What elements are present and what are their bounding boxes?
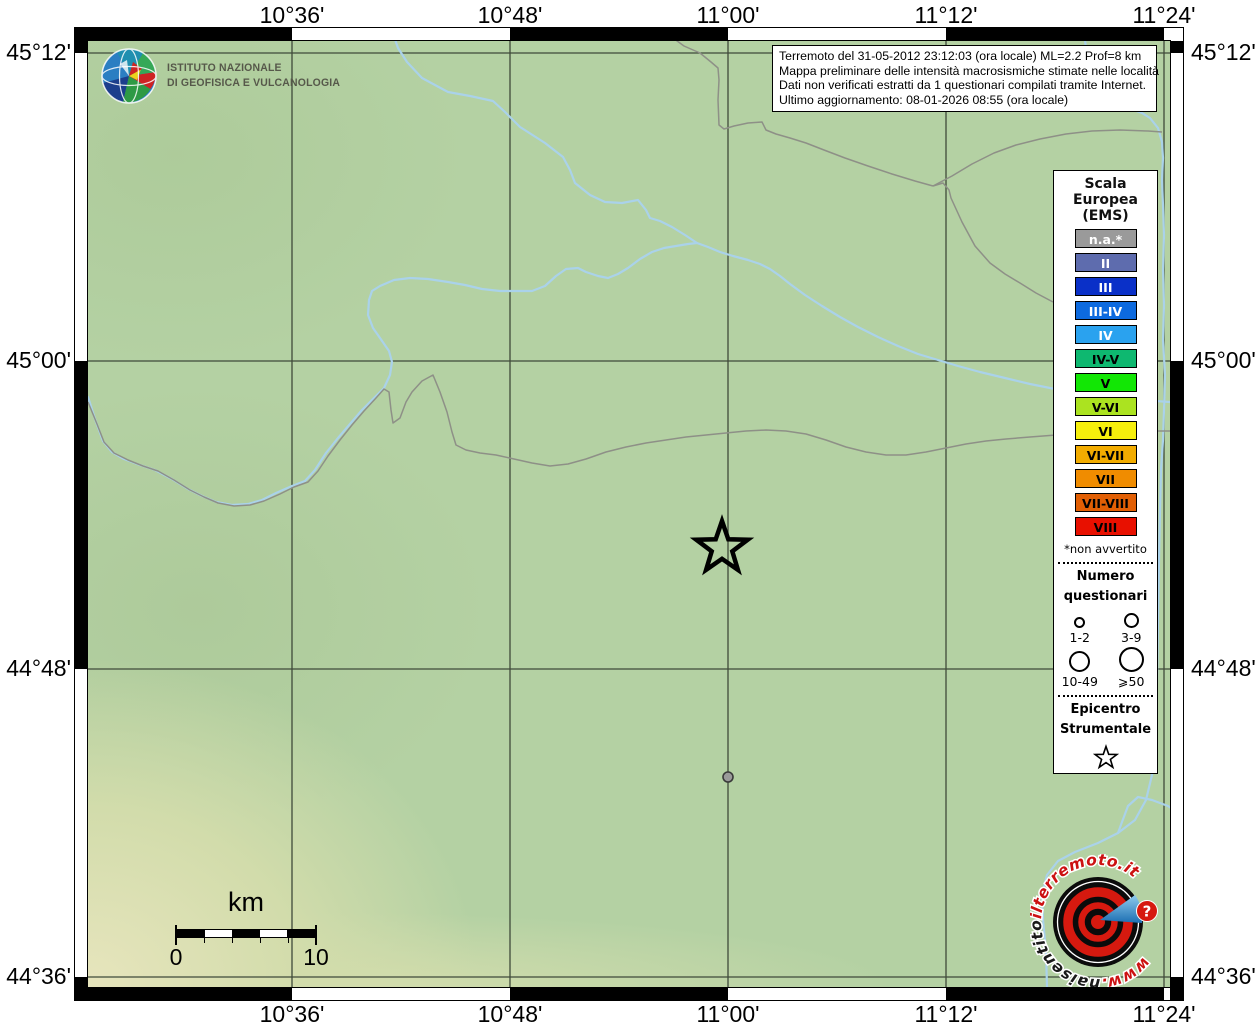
questionnaire-size-item: 10-49 xyxy=(1054,645,1106,689)
latitude-label-left: 45°00' xyxy=(0,347,71,374)
latitude-label-right: 44°48' xyxy=(1191,655,1256,682)
scale-bar-tick xyxy=(175,925,177,945)
map-markers xyxy=(696,521,747,782)
frame-segment xyxy=(1170,361,1183,669)
intensity-chip: IV-V xyxy=(1075,349,1137,368)
scale-bar-segment xyxy=(287,930,315,937)
frame-segment xyxy=(292,28,510,41)
scale-bar-segment xyxy=(232,930,260,937)
questionnaires-title-line: Numero xyxy=(1054,567,1157,587)
frame-segment xyxy=(510,987,728,1000)
intensity-chip: V-VI xyxy=(1075,397,1137,416)
longitude-label-top: 11°00' xyxy=(696,2,759,29)
ingv-name-line2: DI GEOFISICA E VULCANOLOGIA xyxy=(167,76,340,91)
title-box: Terremoto del 31-05-2012 23:12:03 (ora l… xyxy=(772,45,1157,112)
latitude-label-left: 44°36' xyxy=(0,963,71,990)
longitude-label-bottom: 10°48' xyxy=(478,1001,543,1024)
longitude-label-bottom: 11°12' xyxy=(914,1001,977,1024)
frame-segment xyxy=(728,987,946,1000)
admin-boundary xyxy=(933,183,1053,302)
questionnaire-size-circle xyxy=(1119,647,1144,672)
map-canvas: ISTITUTO NAZIONALE DI GEOFISICA E VULCAN… xyxy=(88,41,1170,987)
frame-segment xyxy=(75,53,88,361)
intensity-chip: VIII xyxy=(1075,517,1137,536)
map-page: 10°36'10°36'10°48'10°48'11°00'11°00'11°1… xyxy=(0,0,1257,1024)
legend-divider xyxy=(1058,695,1153,697)
ingv-globe-icon xyxy=(100,47,158,105)
questionnaire-size-label: ⩾50 xyxy=(1118,674,1144,689)
intensity-chip: VII-VIII xyxy=(1075,493,1137,512)
frame-segment xyxy=(946,987,1164,1000)
frame-segment xyxy=(510,28,728,41)
river xyxy=(88,243,1170,505)
ingv-name: ISTITUTO NAZIONALE DI GEOFISICA E VULCAN… xyxy=(167,61,340,105)
questionnaire-size-label: 10-49 xyxy=(1062,674,1098,689)
scale-bar-tick xyxy=(204,938,205,943)
scale-bar-tick xyxy=(288,938,289,943)
frame-band-right xyxy=(1170,28,1183,1000)
latitude-label-right: 44°36' xyxy=(1191,963,1256,990)
longitude-label-top: 11°12' xyxy=(914,2,977,29)
felt-report-dot xyxy=(723,772,733,782)
ingv-logo: ISTITUTO NAZIONALE DI GEOFISICA E VULCAN… xyxy=(100,47,349,105)
grid-lines xyxy=(88,41,1170,987)
legend-divider xyxy=(1058,562,1153,564)
frame-segment xyxy=(75,987,292,1000)
river xyxy=(391,41,697,243)
legend-title-line: Scala xyxy=(1054,176,1157,192)
scale-bar-tick xyxy=(315,925,317,945)
scale-bar-segments xyxy=(176,929,316,938)
questionnaire-size-label: 3-9 xyxy=(1121,630,1141,645)
questionnaire-size-item: 3-9 xyxy=(1106,611,1158,645)
longitude-label-bottom: 11°24' xyxy=(1132,1001,1195,1024)
scale-bar-start: 0 xyxy=(156,944,196,971)
legend-title-line: Europea xyxy=(1054,192,1157,208)
frame-segment xyxy=(292,987,510,1000)
intensity-chip: III-IV xyxy=(1075,301,1137,320)
ingv-name-line1: ISTITUTO NAZIONALE xyxy=(167,61,340,76)
frame-segment xyxy=(75,977,88,1000)
latitude-label-right: 45°12' xyxy=(1191,39,1256,66)
frame-segment xyxy=(75,669,88,977)
epicenter-star xyxy=(696,521,747,570)
frame-segment xyxy=(728,28,946,41)
intensity-chip: II xyxy=(1075,253,1137,272)
questionnaire-size-key: 1-23-910-49⩾50 xyxy=(1054,611,1157,689)
legend-title-line: (EMS) xyxy=(1054,208,1157,224)
frame-corner xyxy=(1170,28,1183,41)
legend-footnote: *non avvertito xyxy=(1054,542,1157,556)
frame-segment xyxy=(946,28,1164,41)
questionnaire-size-item: 1-2 xyxy=(1054,611,1106,645)
scale-bar-tick xyxy=(260,938,261,943)
title-line-data: Dati non verificati estratti da 1 questi… xyxy=(779,78,1150,93)
frame-segment xyxy=(75,28,88,53)
legend: Scala Europea (EMS) n.a.*IIIIIIII-IVIVIV… xyxy=(1053,170,1158,774)
latitude-label-left: 44°48' xyxy=(0,655,71,682)
scale-bar-end: 10 xyxy=(296,944,336,971)
questionnaires-title-line: questionari xyxy=(1054,587,1157,607)
longitude-label-bottom: 10°36' xyxy=(260,1001,325,1024)
longitude-label-top: 11°24' xyxy=(1132,2,1195,29)
title-line-desc: Mappa preliminare delle intensità macros… xyxy=(779,64,1150,79)
intensity-chip: VII xyxy=(1075,469,1137,488)
longitude-label-top: 10°48' xyxy=(478,2,543,29)
scale-bar-tick xyxy=(232,938,233,943)
latitude-label-left: 45°12' xyxy=(0,39,71,66)
latitude-label-right: 45°00' xyxy=(1191,347,1256,374)
frame-segment xyxy=(1170,53,1183,361)
question-mark-text: ? xyxy=(1143,903,1152,921)
questionnaire-size-circle xyxy=(1124,613,1139,628)
intensity-chip: V xyxy=(1075,373,1137,392)
questionnaire-size-circle xyxy=(1074,617,1085,628)
intensity-chip: VI xyxy=(1075,421,1137,440)
scale-bar-segment xyxy=(260,930,288,937)
frame-segment xyxy=(1170,669,1183,977)
intensity-chip: n.a.* xyxy=(1075,229,1137,248)
frame-band-top xyxy=(75,28,1183,41)
frame-segment xyxy=(75,361,88,669)
admin-boundary xyxy=(88,375,1170,506)
title-line-updated: Ultimo aggiornamento: 08-01-2026 08:55 (… xyxy=(779,93,1150,108)
scale-bar-segment xyxy=(205,930,233,937)
title-line-event: Terremoto del 31-05-2012 23:12:03 (ora l… xyxy=(779,49,1150,64)
map-frame: ISTITUTO NAZIONALE DI GEOFISICA E VULCAN… xyxy=(74,27,1184,1001)
epicenter-star-icon xyxy=(1054,744,1157,774)
map-graphics xyxy=(88,41,1170,987)
scale-bar-unit: km xyxy=(176,887,316,918)
intensity-chip: VI-VII xyxy=(1075,445,1137,464)
frame-band-bottom xyxy=(75,987,1183,1000)
questionnaire-size-label: 1-2 xyxy=(1070,630,1090,645)
frame-segment xyxy=(1170,977,1183,1000)
frame-segment xyxy=(75,28,292,41)
intensity-chip: IV xyxy=(1075,325,1137,344)
scale-bar-segment xyxy=(177,930,205,937)
frame-band-left xyxy=(75,28,88,1000)
epicenter-title-line: Epicentro xyxy=(1054,700,1157,720)
longitude-label-bottom: 11°00' xyxy=(696,1001,759,1024)
epicenter-title-line: Strumentale xyxy=(1054,720,1157,740)
intensity-chip: III xyxy=(1075,277,1137,296)
intensity-chips: n.a.*IIIIIIII-IVIVIV-VVV-VIVIVI-VIIVIIVI… xyxy=(1054,229,1157,536)
questionnaire-size-circle xyxy=(1069,651,1090,672)
questionnaire-size-item: ⩾50 xyxy=(1106,645,1158,689)
longitude-label-top: 10°36' xyxy=(260,2,325,29)
watermark-logo: www.haisentitoilterremoto.it ? xyxy=(1030,854,1166,987)
